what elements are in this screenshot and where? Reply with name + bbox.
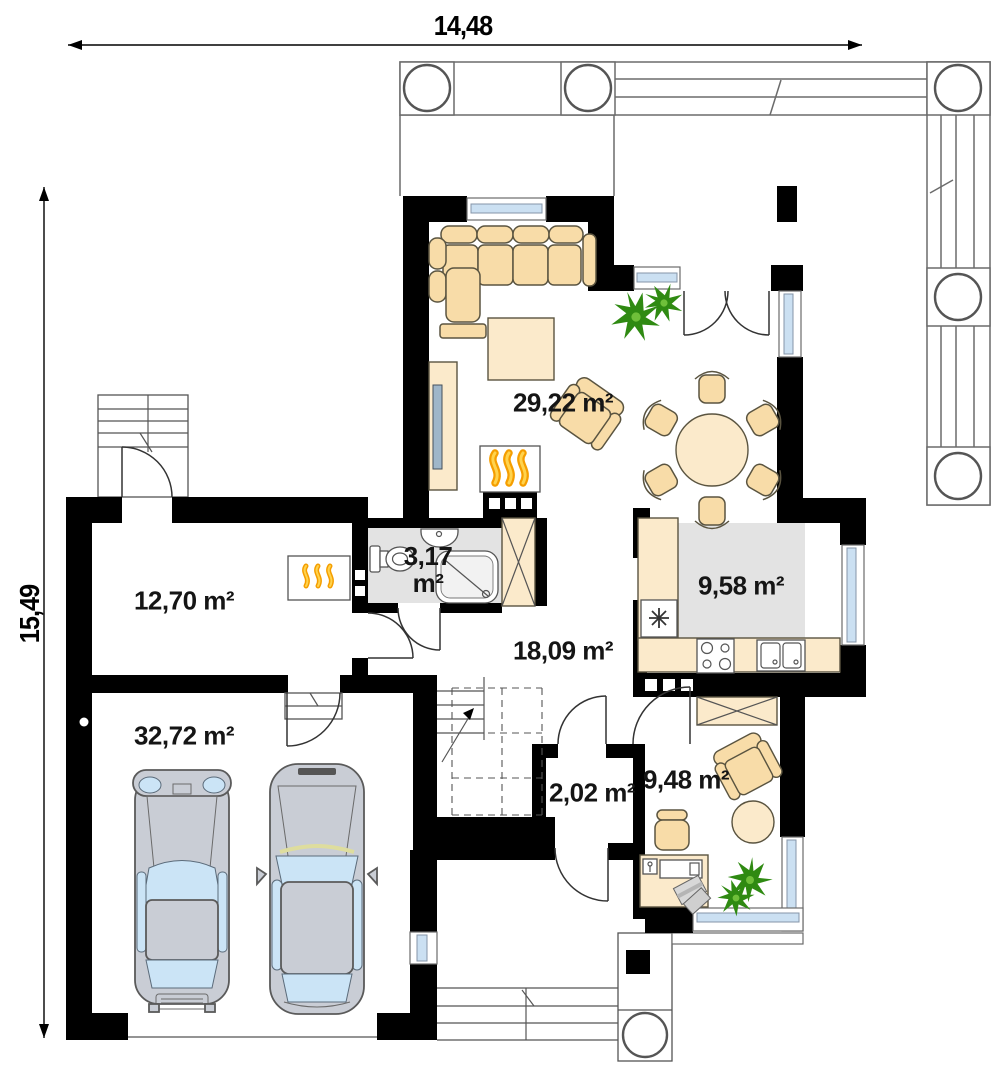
- room-area-label-kitchen: 9,58 m²: [698, 573, 784, 600]
- terrace-column: [927, 268, 990, 326]
- window: [634, 267, 680, 289]
- door: [368, 613, 413, 658]
- door: [398, 608, 440, 650]
- kitchen-sink: [757, 640, 805, 671]
- double-door: [684, 291, 769, 335]
- room-area-label-bathroom: 3,17 m²: [390, 543, 466, 597]
- window: [410, 932, 437, 964]
- exterior-stairs: [98, 395, 188, 497]
- entry-door: [555, 848, 608, 901]
- entry-steps: [437, 988, 618, 1040]
- desk-chair: [655, 810, 689, 850]
- dimension-height-label: 15,49: [14, 585, 46, 644]
- floor-plan: 14,48 15,49 29,22 m² 12,70 m² 3,17 m² 18…: [0, 0, 994, 1080]
- floor-plan-drawing: [0, 0, 994, 1080]
- window: [693, 908, 803, 931]
- dimension-width-label: 14,48: [434, 10, 493, 42]
- side-table: [732, 801, 774, 843]
- terrace-column: [561, 62, 615, 115]
- tv-cabinet: [429, 362, 457, 490]
- wardrobe: [697, 697, 777, 725]
- fireplace: [480, 446, 540, 492]
- porch-column: [618, 933, 803, 1061]
- room-area-label-garage: 32,72 m²: [134, 723, 234, 750]
- room-area-label-vestibule: 2,02 m²: [549, 780, 635, 807]
- terrace-column: [927, 447, 990, 505]
- car: [133, 770, 231, 1012]
- wardrobe: [502, 518, 535, 606]
- window: [842, 545, 864, 645]
- desk: [640, 855, 711, 914]
- car: [257, 764, 377, 1014]
- garage-door: [285, 693, 342, 746]
- fridge: [641, 600, 677, 637]
- room-area-label-office: 9,48 m²: [643, 767, 729, 794]
- door: [558, 696, 606, 744]
- window: [467, 198, 546, 220]
- room-area-label-utility: 12,70 m²: [134, 588, 234, 615]
- staircase: [437, 677, 542, 815]
- terrace-column: [400, 62, 454, 115]
- window: [779, 291, 801, 357]
- dining-table: [676, 414, 748, 486]
- room-area-label-living: 29,22 m²: [513, 390, 613, 417]
- heater: [288, 556, 350, 600]
- porch-sill: [672, 933, 803, 944]
- dining-set: [638, 372, 787, 529]
- stove: [697, 639, 734, 673]
- coffee-table: [488, 318, 554, 380]
- terrace-column: [927, 62, 990, 115]
- room-area-label-hall: 18,09 m²: [513, 638, 613, 665]
